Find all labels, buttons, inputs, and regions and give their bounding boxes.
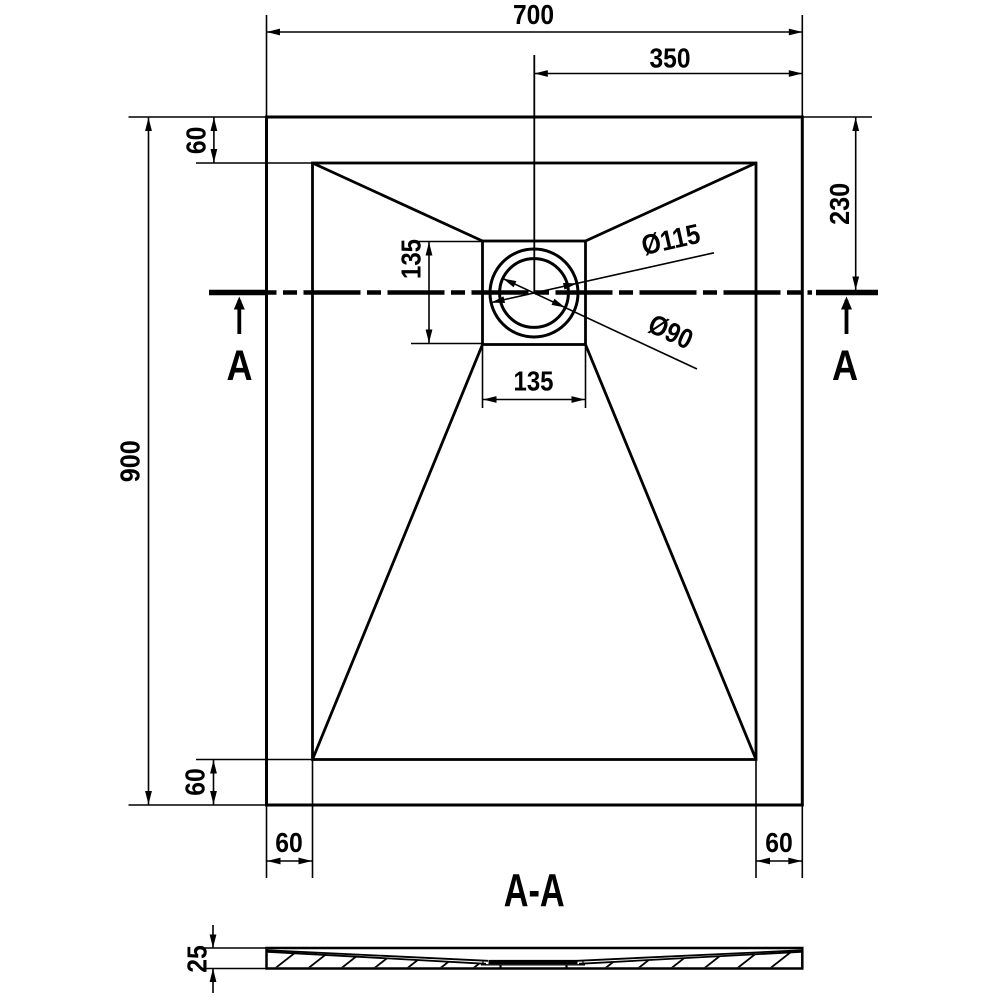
svg-text:135: 135 [396, 239, 427, 279]
svg-text:60: 60 [275, 827, 303, 858]
svg-text:135: 135 [514, 366, 554, 397]
svg-text:60: 60 [180, 768, 211, 796]
svg-text:700: 700 [513, 0, 554, 30]
svg-text:350: 350 [650, 43, 691, 74]
svg-text:A: A [226, 342, 252, 390]
svg-text:60: 60 [765, 827, 793, 858]
svg-text:A-A: A-A [504, 864, 565, 916]
svg-text:60: 60 [181, 127, 212, 155]
svg-text:900: 900 [114, 440, 145, 482]
svg-text:A: A [832, 342, 858, 390]
svg-text:25: 25 [182, 945, 213, 973]
svg-text:230: 230 [824, 183, 855, 225]
